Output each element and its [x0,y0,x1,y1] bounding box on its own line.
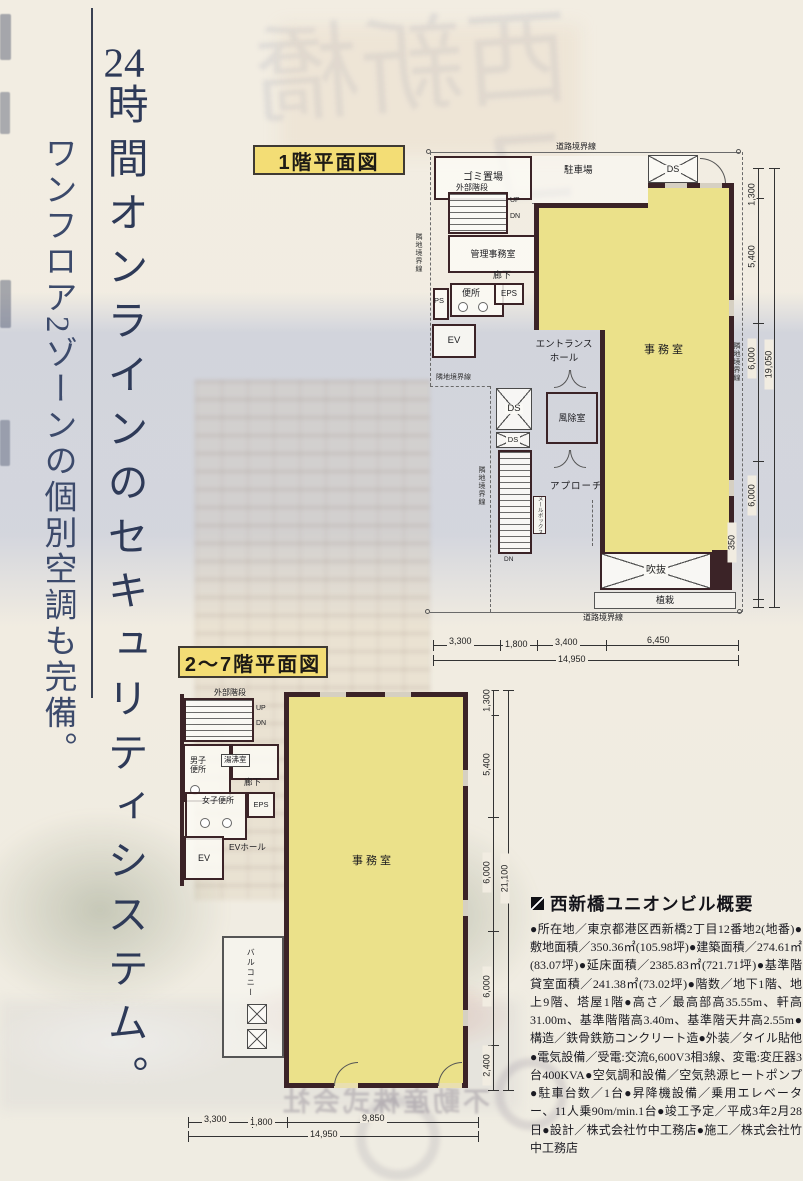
plan2-ev-hall-label: EVホール [229,843,266,853]
boundary-point [736,149,741,154]
dimension-tick [537,640,538,651]
dimension-line [758,168,759,608]
plan2-dim-right-1: 5,400 [483,745,492,785]
page-edge-bleed-mark [0,420,10,466]
plan2-eps-shaft: EPS [247,792,275,818]
plan1-void-box: 吹抜 [600,552,712,590]
plan1-adjacent-boundary-line-left-lower [490,386,491,612]
plan1-ds-shaft-1: DS [496,388,532,430]
plan2-elevator-label: EV [198,853,210,863]
plan1-dn-label: DN [510,213,520,221]
dimension-tick [753,323,764,324]
plan2-dim-bottom-0: 3,300 [202,1115,229,1124]
balcony-hatch-box [247,1029,267,1049]
plan2-elevator: EV [184,836,224,880]
headline-divider [91,8,93,698]
plan1-parking-label: 駐車場 [564,166,593,177]
plan1-eps-label: EPS [501,289,517,298]
plan1-adjacent-boundary-step [430,386,490,387]
ghost-warm-patch [280,25,580,155]
plan2-ext-stairs-label: 外部階段 [214,688,246,697]
dimension-line [433,645,738,646]
dimension-tick [503,690,514,691]
plan1-ds-shaft-top: DS [648,155,698,183]
plan1-approach-label: アプローチ [550,482,603,493]
dimension-tick [500,640,501,651]
plan2-dim-right-total: 21,100 [501,854,510,904]
plan2-dim-right-2: 6,000 [483,853,492,893]
window-gap [463,770,468,786]
plan1-office-label: 事務室 [644,344,686,357]
dimension-tick [287,1117,288,1128]
dimension-line [188,1122,478,1123]
page-edge-bleed-mark [0,14,11,60]
dimension-tick [753,599,764,600]
plan2-up-label: UP [256,705,266,713]
plan1-adjacent-boundary-label-left: 隣地境界線 [414,233,422,273]
plan1-office-area [600,330,648,552]
plan1-dim-bottom-3: 6,450 [645,636,672,645]
plan1-windbreak-label: 風除室 [558,413,585,423]
overview-title: 西新橋ユニオンビル概要 [550,891,754,916]
plan1-ext-stairs [448,192,508,234]
plan1-elevator-label: EV [448,336,461,347]
dimension-tick [606,640,607,651]
window-gap [729,480,734,496]
toilet-fixture [478,302,488,312]
dimension-tick [188,1131,189,1142]
plan1-up-label: UP [510,197,520,205]
plan1-eps-shaft: EPS [494,283,524,305]
plan1-admin-office: 管理事務室 [448,235,538,273]
dimension-tick [753,168,764,169]
brochure-page: 西新橋ユ 不動産株式会社 24時間オンラインのセキュリティシステム。 ワンフロア… [0,0,803,1181]
plan2-dim-right-4: 2,400 [483,1046,492,1086]
plan1-ext-stairs-label: 外部階段 [456,183,488,192]
plan1-admin-office-label: 管理事務室 [470,249,515,259]
plan1-approach-dashed-door [592,500,593,546]
plan1-dim-right-total: 19,050 [765,340,774,390]
plan1-dim-right-1: 5,400 [748,237,757,277]
dimension-tick [478,1117,479,1128]
plan1-planting-strip: 植栽 [594,592,736,609]
page-edge-bleed-mark [0,92,10,134]
dimension-tick [478,1131,479,1142]
plan1-planting-label: 植栽 [656,595,674,605]
window-gap [320,692,346,697]
window-gap [463,900,468,916]
toilet-fixture [222,818,232,828]
plan1-parking-area [532,156,648,204]
dimension-tick [753,461,764,462]
dimension-line [493,690,494,1090]
plan1-office-area [534,203,648,330]
headline-number: 24 [101,42,147,83]
headline-security-text: 時間オンラインのセキュリティシステム。 [101,83,147,1109]
dimension-line-total [774,168,775,608]
plan2-kitchenette-label: 湯沸室 [221,754,250,767]
plan2-eps-label: EPS [253,801,268,810]
plan1-ps-label: PS [434,297,444,306]
plan1-ds-shaft-2: DS [496,432,530,448]
plan1-entrance-hall-label: エントランス ホール [524,338,604,367]
plan2-title: 2〜7階平面図 [178,646,328,678]
plan2-ext-stairs [184,698,254,742]
plan1-road-boundary-line-top [430,152,740,153]
door-arc [570,370,586,388]
toilet-fixture [458,302,468,312]
plan1-adjacent-boundary-line-left [430,152,431,386]
plan1-windbreak-room: 風除室 [546,392,598,444]
plan1-mailbox-label: メールボックス [536,496,542,535]
plan2-dim-bottom-2: 9,850 [360,1114,387,1123]
plan2-dim-bottom-total: 14,950 [308,1130,340,1139]
page-edge-bleed-mark [0,280,11,328]
dimension-tick [738,640,739,651]
door-arc [570,450,586,468]
plan1-dim-bottom-0: 3,300 [447,637,474,646]
plan2-corridor-label: 廊下 [244,778,261,788]
plan1-dim-right-4: 350 [728,523,737,563]
plan1-corridor-label: 廊下 [493,270,511,280]
plan1-road-boundary-label-bottom: 道路境界線 [583,613,623,622]
headline-hvac: ワンフロア2ゾーンの個別空調も完備。 [33,136,81,776]
window-gap [700,183,722,188]
dimension-tick [738,655,739,666]
boundary-point [737,609,742,614]
plan1-adjacent-boundary-label-left-lower: 隣地境界線 [477,466,485,506]
plan1-dim-right-3: 6,000 [748,476,757,516]
dimension-tick [503,1090,514,1091]
plan1-mailbox: メールボックス [533,496,546,534]
window-gap [463,1010,468,1026]
dimension-tick [433,640,434,651]
plan2-office-area [284,692,468,1088]
plan1-elevator: EV [432,324,476,358]
window-gap [729,300,734,316]
plan1-road-boundary-label-top: 道路境界線 [556,142,596,151]
plan1-dim-bottom-1: 1,800 [503,640,530,649]
plan2-dim-bottom-1: 1,800 [248,1118,275,1127]
overview-body-text: ●所在地／東京都港区西新橋2丁目12番地2(地番)●敷地面積／350.36㎡(1… [530,920,802,1157]
overview-bullet-icon [531,897,544,910]
toilet-fixture [200,818,210,828]
plan2-women-toilet-label: 女子便所 [202,796,234,805]
plan2-dim-right-3: 6,000 [483,967,492,1007]
plan2-dim-right-0: 1,300 [483,681,492,721]
plan1-dim-right-0: 1,300 [748,175,757,215]
dimension-tick [769,168,780,169]
dimension-tick [188,1117,189,1128]
plan1-approach-stairs [498,450,532,554]
plan2-office-label: 事務室 [352,855,394,868]
dimension-tick [488,1090,499,1091]
dimension-tick [488,931,499,932]
door-arc [554,370,570,388]
balcony-hatch-box [247,1004,267,1024]
plan2-balcony-label: バルコニー [246,948,255,998]
dimension-tick [769,607,780,608]
plan1-dim-bottom-2: 3,400 [553,638,580,647]
door-arc [554,450,570,468]
boundary-point [425,609,430,614]
plan1-dn-label-2: DN [504,556,513,563]
plan2-dn-label: DN [256,720,266,728]
plan1-dim-bottom-total: 14,950 [556,655,588,664]
dimension-tick [488,817,499,818]
plan1-adjacent-boundary-line-right [742,152,743,612]
plan1-office-area [648,183,734,552]
plan2-men-toilet-label: 男子便所 [190,756,209,774]
window-gap [385,692,411,697]
plan1-title: 1階平面図 [253,145,405,175]
dimension-tick [433,655,434,666]
plan1-adjacent-boundary-label-small: 隣地境界線 [436,374,471,382]
door-arc [700,158,726,184]
dimension-tick [753,607,764,608]
ghost-logo-ring-2 [356,1096,440,1180]
plan1-dim-right-2: 6,000 [748,339,757,379]
window-gap [665,183,687,188]
headline-security: 24時間オンラインのセキュリティシステム。 [94,42,154,1172]
overview-title-row: 西新橋ユニオンビル概要 [531,891,754,916]
plan1-toilet-label: 便所 [462,288,480,298]
